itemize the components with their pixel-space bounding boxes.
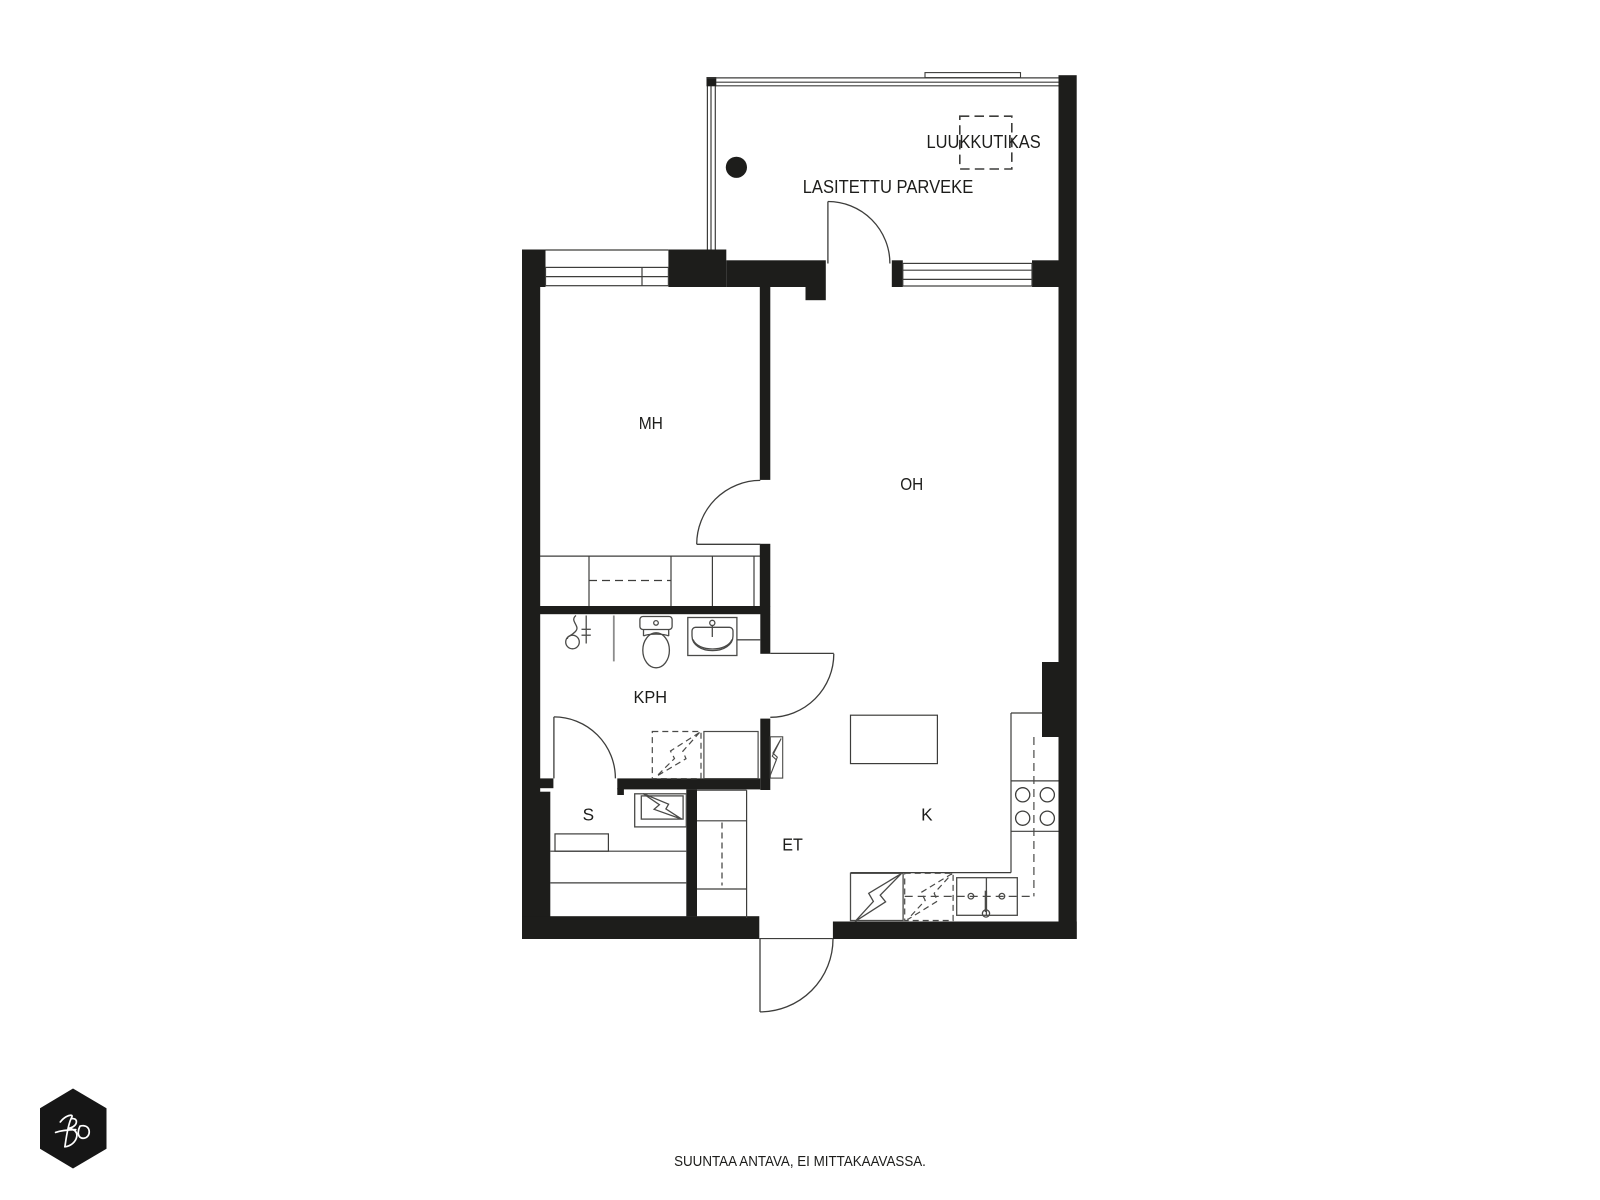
svg-text:S: S (583, 805, 594, 825)
svg-text:MH: MH (639, 413, 663, 433)
svg-text:ET: ET (782, 835, 803, 855)
svg-text:LUUKKUTIKAS: LUUKKUTIKAS (927, 132, 1041, 152)
svg-text:SUUNTAA ANTAVA, EI MITTAKAAVAS: SUUNTAA ANTAVA, EI MITTAKAAVASSA. (674, 1153, 926, 1170)
svg-text:LASITETTU PARVEKE: LASITETTU PARVEKE (803, 177, 974, 197)
svg-text:OH: OH (900, 474, 923, 494)
svg-text:K: K (921, 805, 933, 825)
svg-text:KPH: KPH (634, 687, 668, 707)
